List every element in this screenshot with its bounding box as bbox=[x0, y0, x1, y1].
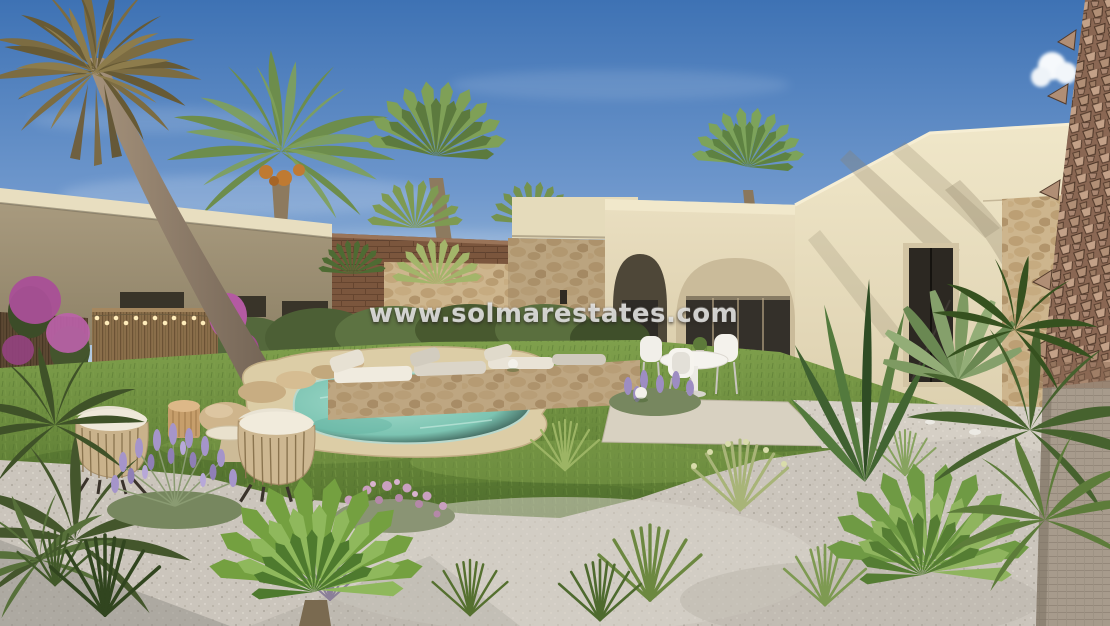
boulder-highlight bbox=[205, 404, 233, 418]
scene-canvas bbox=[0, 0, 1110, 626]
wall-sconce bbox=[560, 290, 567, 304]
villa-garden-render: www.solmarestates.com bbox=[0, 0, 1110, 626]
